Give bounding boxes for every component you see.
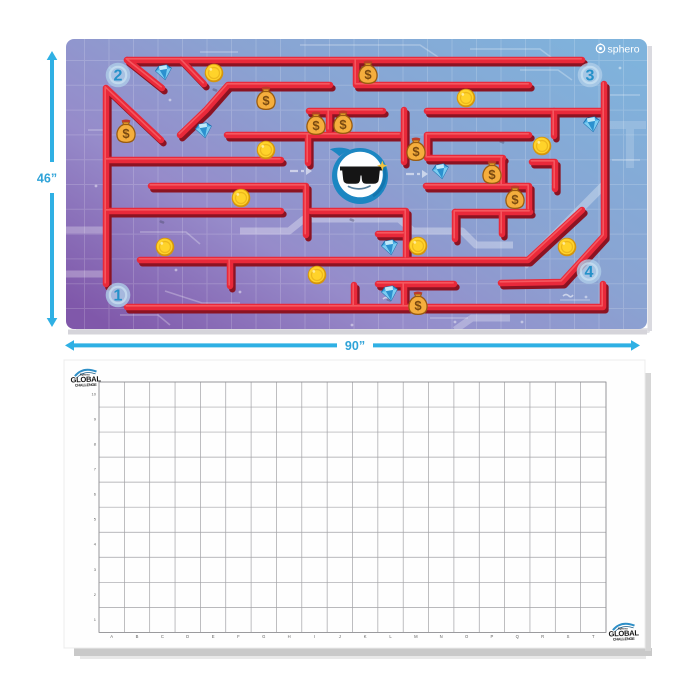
svg-text:1: 1: [114, 288, 123, 305]
svg-text:F: F: [237, 634, 240, 639]
svg-text:I: I: [314, 634, 315, 639]
svg-text:E: E: [212, 634, 215, 639]
svg-text:46”: 46”: [37, 172, 57, 186]
svg-text:CHALLENGE: CHALLENGE: [613, 637, 636, 642]
svg-text:J: J: [339, 634, 341, 639]
svg-text:4: 4: [585, 264, 594, 281]
svg-text:H: H: [288, 634, 291, 639]
svg-text:M: M: [414, 634, 418, 639]
svg-text:S: S: [567, 634, 570, 639]
svg-text:CHALLENGE: CHALLENGE: [75, 383, 98, 388]
svg-text:90”: 90”: [345, 339, 365, 353]
svg-text:P: P: [491, 634, 494, 639]
svg-text:10: 10: [92, 392, 97, 397]
svg-text:G: G: [262, 634, 265, 639]
svg-text:3: 3: [586, 68, 595, 85]
svg-text:B: B: [136, 634, 139, 639]
svg-text:2: 2: [114, 68, 123, 85]
svg-text:C: C: [161, 634, 164, 639]
svg-text:K: K: [364, 634, 367, 639]
svg-text:D: D: [186, 634, 189, 639]
svg-text:R: R: [541, 634, 544, 639]
svg-text:N: N: [440, 634, 443, 639]
svg-text:T: T: [592, 634, 595, 639]
svg-text:sphero: sphero: [608, 44, 640, 56]
svg-text:A: A: [110, 634, 113, 639]
